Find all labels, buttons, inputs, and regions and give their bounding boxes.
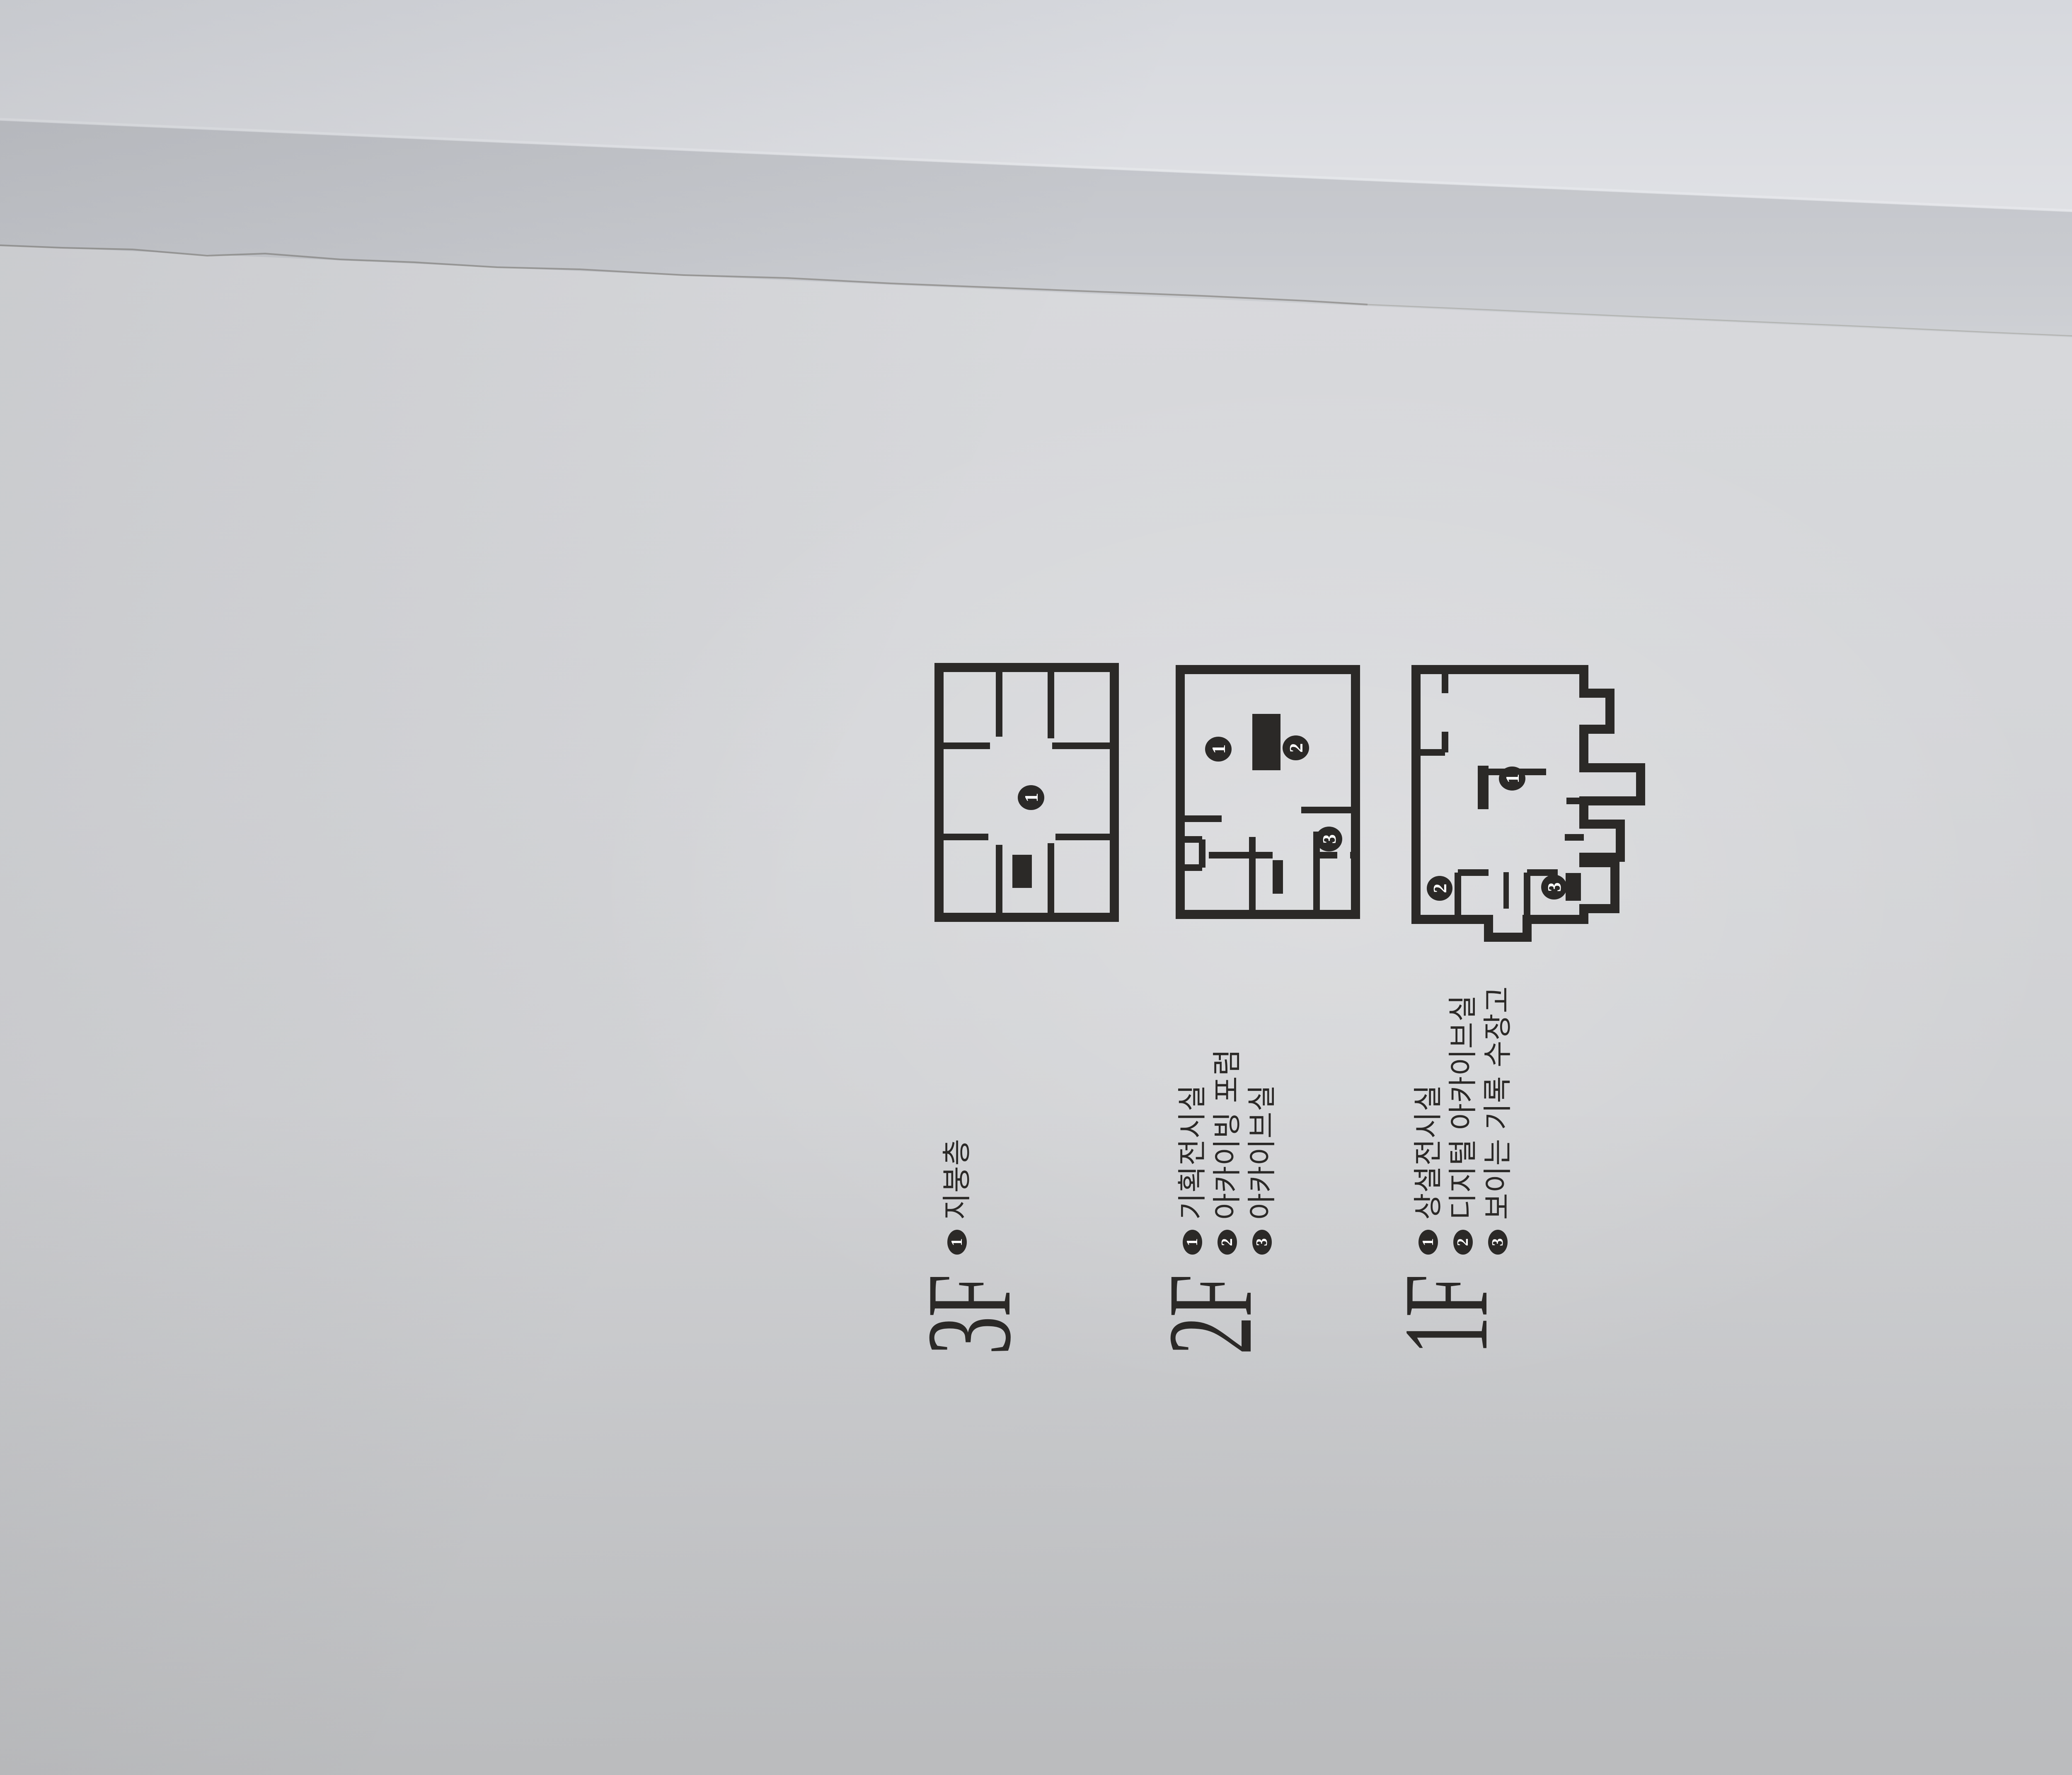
room-name: 아카이빙 포럼: [1213, 1049, 1241, 1220]
list-item: 3 아카이브실: [1248, 1049, 1276, 1255]
plan-marker-2f-3: 3: [1319, 834, 1340, 844]
room-number-bullet: 2: [1453, 1230, 1473, 1255]
room-name: 지붕층: [943, 1139, 971, 1220]
floor-directory-sign: 3F 1 지붕층 1 2F 1 기획전시실 2 아카이빙 포럼 3 아카이브실: [934, 663, 1650, 1355]
floorplan-1f: 1 2 3: [1411, 665, 1652, 942]
room-number-bullet: 2: [1218, 1230, 1237, 1255]
floorplan-2f: 1 2 3: [1176, 665, 1360, 919]
room-name: 디지털 아카이브실: [1449, 994, 1477, 1220]
plan-marker-2f-2: 2: [1285, 743, 1307, 753]
room-list-1f: 1 상설전시실 2 디지털 아카이브실 3 보이는 기록 수장고: [1414, 986, 1518, 1255]
room-list-2f: 1 기획전시실 2 아카이빙 포럼 3 아카이브실: [1178, 1049, 1283, 1255]
list-item: 1 상설전시실: [1414, 986, 1442, 1255]
room-name: 기획전시실: [1178, 1084, 1206, 1220]
room-name: 상설전시실: [1414, 1084, 1442, 1220]
room-number-bullet: 1: [1183, 1230, 1202, 1255]
floor-label-3f: 3F: [909, 1275, 1030, 1355]
list-item: 1 지붕층: [943, 1139, 971, 1255]
room-number-bullet: 3: [1252, 1230, 1272, 1255]
floor-label-2f: 2F: [1150, 1275, 1271, 1355]
list-item: 2 아카이빙 포럼: [1213, 1049, 1241, 1255]
photo-of-wall-directory: { "sign": { "ink_color": "#2b2927", "flo…: [0, 0, 2072, 1775]
room-number-bullet: 3: [1488, 1230, 1508, 1255]
floorplan-3f: 1: [934, 663, 1119, 922]
plan-marker-2f-1: 1: [1208, 745, 1229, 754]
list-item: 2 디지털 아카이브실: [1449, 986, 1477, 1255]
plan-marker-3f-1: 1: [1021, 793, 1042, 803]
room-name: 아카이브실: [1248, 1084, 1276, 1220]
room-number-bullet: 1: [1418, 1230, 1438, 1255]
plan-marker-1f-3: 3: [1544, 883, 1565, 892]
plan-marker-1f-2: 2: [1429, 884, 1450, 893]
list-item: 1 기획전시실: [1178, 1049, 1206, 1255]
room-list-3f: 1 지붕층: [943, 1139, 978, 1255]
list-item: 3 보이는 기록 수장고: [1484, 986, 1512, 1255]
room-number-bullet: 1: [947, 1230, 967, 1255]
plan-marker-1f-1: 1: [1502, 774, 1523, 784]
floor-label-1f: 1F: [1386, 1275, 1507, 1355]
room-name: 보이는 기록 수장고: [1484, 986, 1512, 1220]
